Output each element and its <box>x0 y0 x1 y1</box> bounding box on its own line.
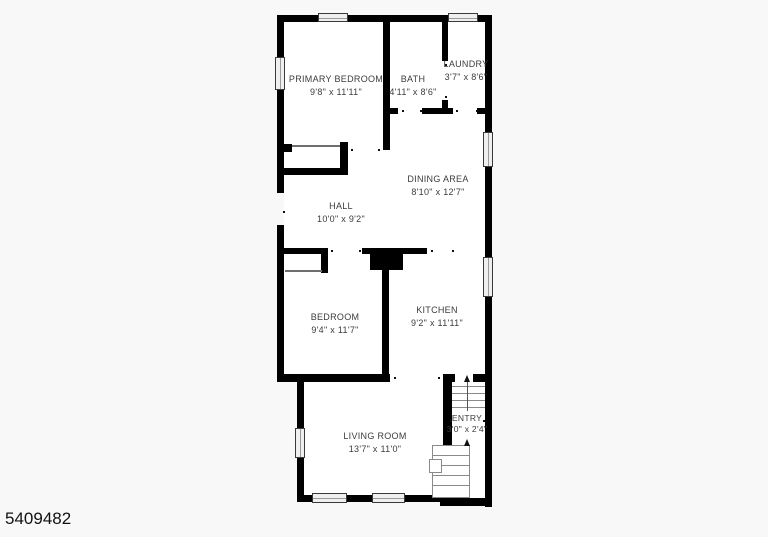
room-dims: 13'7" x 11'0" <box>343 443 406 456</box>
door-marker-dot <box>431 250 433 252</box>
closet-front-line <box>292 145 340 147</box>
closet-front-line <box>285 270 322 272</box>
room-dims: 8'10" x 12'7" <box>407 186 468 199</box>
wall <box>485 297 492 507</box>
room-dims: 3'7" x 8'6" <box>444 71 489 84</box>
window <box>483 132 493 167</box>
door-marker-dot <box>420 110 422 112</box>
stair-step <box>452 386 485 387</box>
room-label-laundry: LAUNDRY 3'7" x 8'6" <box>444 58 489 84</box>
floorplan-canvas: PRIMARY BEDROOM 9'8" x 11'11" BATH 4'11"… <box>0 0 768 537</box>
door-marker-dot <box>394 377 396 379</box>
room-dims: 9'8" x 11'11" <box>289 86 383 99</box>
stair-step <box>432 455 470 456</box>
wall <box>485 167 492 257</box>
wall <box>347 495 373 502</box>
wall <box>284 144 292 152</box>
wall <box>277 225 284 382</box>
stair-step <box>452 400 485 401</box>
wall <box>284 168 348 175</box>
wall <box>440 498 492 506</box>
room-label-living-room: LIVING ROOM 13'7" x 11'0" <box>343 430 406 456</box>
stair-step <box>452 407 485 408</box>
room-dims: 4'11" x 8'6" <box>389 86 436 99</box>
room-label-bath: BATH 4'11" x 8'6" <box>389 73 436 99</box>
wall <box>297 376 304 428</box>
room-name: DINING AREA <box>407 173 468 186</box>
room-name: PRIMARY BEDROOM <box>289 73 383 86</box>
wall <box>477 108 485 114</box>
window <box>295 428 305 458</box>
stair-up-arrow-icon <box>464 439 470 446</box>
wall <box>442 22 448 61</box>
wall <box>277 374 390 382</box>
room-name: KITCHEN <box>411 304 463 317</box>
door-marker-dot <box>445 96 447 98</box>
window <box>483 257 493 297</box>
room-name: ENTRY <box>447 413 487 424</box>
door-marker-dot <box>402 110 404 112</box>
room-dims: 3'0" x 2'4" <box>447 424 487 435</box>
door-marker-dot <box>331 250 333 252</box>
room-name: LAUNDRY <box>444 58 489 71</box>
door-marker-dot <box>452 250 454 252</box>
room-label-kitchen: KITCHEN 9'2" x 11'11" <box>411 304 463 330</box>
stair-step <box>432 475 470 476</box>
wall <box>321 248 328 273</box>
room-name: HALL <box>317 200 365 213</box>
stair-step <box>432 485 470 486</box>
room-dims: 9'2" x 11'11" <box>411 317 463 330</box>
stair-step <box>452 393 485 394</box>
room-label-dining-area: DINING AREA 8'10" x 12'7" <box>407 173 468 199</box>
room-name: LIVING ROOM <box>343 430 406 443</box>
window <box>318 13 348 22</box>
wall <box>422 108 453 114</box>
door-marker-dot <box>456 110 458 112</box>
room-dims: 9'4" x 11'7" <box>311 324 360 337</box>
room-label-bedroom: BEDROOM 9'4" x 11'7" <box>311 311 360 337</box>
door-marker-dot <box>438 377 440 379</box>
room-dims: 10'0" x 9'2" <box>317 213 365 226</box>
stair-landing-notch <box>429 459 442 473</box>
wall <box>383 108 398 114</box>
photo-id: 5409482 <box>5 509 71 529</box>
room-name: BATH <box>389 73 436 86</box>
wall <box>277 90 284 193</box>
room-label-entry: ENTRY 3'0" x 2'4" <box>447 413 487 435</box>
door-marker-dot <box>476 110 478 112</box>
room-label-primary-bedroom: PRIMARY BEDROOM 9'8" x 11'11" <box>289 73 383 99</box>
door-marker-dot <box>351 149 353 151</box>
chimney-block <box>370 250 403 270</box>
stair-guideline <box>467 381 468 411</box>
wall <box>382 270 389 375</box>
door-marker-dot <box>283 211 285 213</box>
window <box>275 57 285 90</box>
window <box>372 493 405 503</box>
wall <box>277 15 284 57</box>
stair-up-arrow-icon <box>464 375 470 382</box>
room-name: BEDROOM <box>311 311 360 324</box>
window <box>312 493 347 503</box>
wall <box>473 374 492 382</box>
door-marker-dot <box>378 149 380 151</box>
window <box>448 13 478 22</box>
room-label-hall: HALL 10'0" x 9'2" <box>317 200 365 226</box>
wall <box>297 495 313 502</box>
door-marker-dot <box>359 250 361 252</box>
